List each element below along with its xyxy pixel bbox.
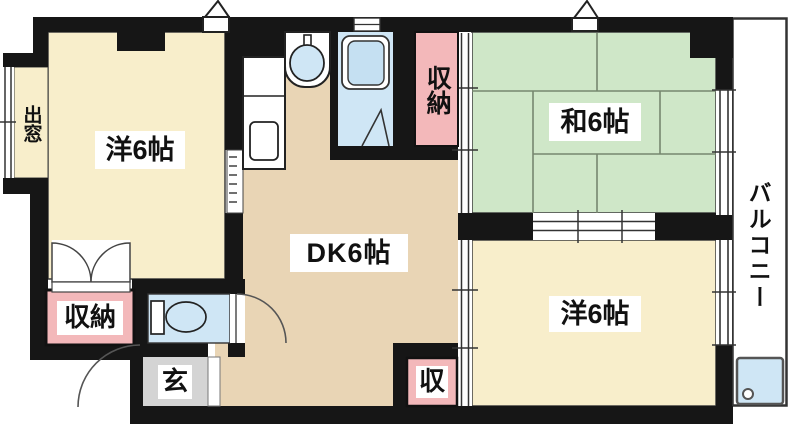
washing-machine-drain <box>743 389 753 399</box>
toilet-bowl <box>166 302 206 332</box>
entrance-label: 玄 <box>158 365 192 399</box>
bay-window-label: 出窓 <box>17 84 44 164</box>
toilet-door-opening <box>230 294 245 343</box>
floor-plan: 洋6帖 DK6帖 和6帖 洋6帖 収納 収納 収 玄 出窓 バルコニー <box>0 0 800 424</box>
closet-bottom-left-label: 収納 <box>57 301 123 335</box>
vent-symbol-left <box>203 1 229 32</box>
japanese-room-label: 和6帖 <box>549 103 641 141</box>
sliding-door-horizontal <box>533 210 655 243</box>
bay-window-glazing <box>0 67 16 178</box>
wash-basin-bowl <box>290 45 324 81</box>
balcony-label: バルコニー <box>742 148 774 343</box>
kitchen-sink <box>250 122 278 160</box>
bathroom-window <box>354 18 380 31</box>
closet-door-track <box>52 282 130 292</box>
vent-symbol-right <box>572 1 598 31</box>
dk-label: DK6帖 <box>290 234 408 272</box>
western-room-bottom-label: 洋6帖 <box>549 296 641 332</box>
closet-small-label: 収 <box>416 366 448 398</box>
toilet-tank <box>151 301 164 334</box>
western-room-top-label: 洋6帖 <box>95 131 185 169</box>
bathtub-inner <box>348 41 384 85</box>
floor-plan-drawing <box>0 0 800 424</box>
closet-top-label: 収納 <box>419 50 455 130</box>
entrance-step <box>208 357 220 406</box>
accordion-door <box>227 150 243 213</box>
